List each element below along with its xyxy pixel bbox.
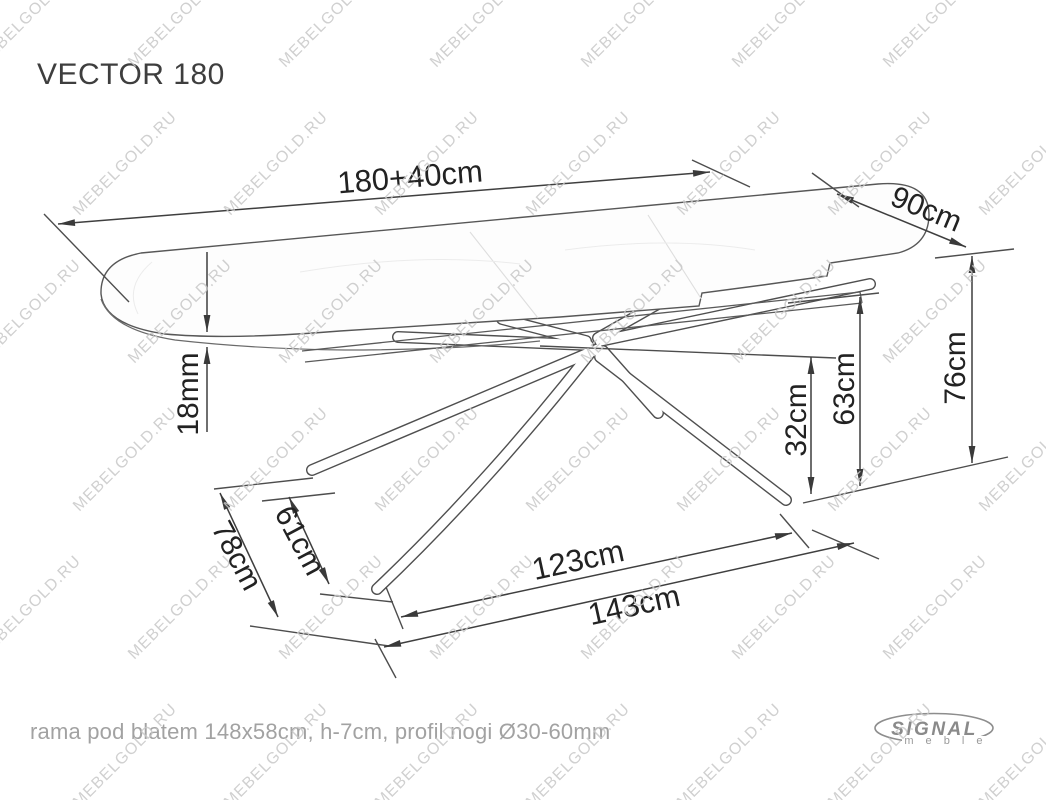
dim-height-frame-arrowhead — [857, 469, 864, 486]
extension-line — [803, 457, 1008, 503]
table-dimension-drawing — [0, 0, 1046, 800]
extension-line — [250, 626, 389, 646]
dim-base-width-inner-arrowhead — [775, 533, 792, 540]
signal-meble-logo: SIGNAL m e b l e — [872, 710, 997, 750]
extension-line — [262, 493, 335, 501]
dim-height-total-arrowhead — [969, 446, 976, 463]
dim-label-height-cross: 32cm — [782, 383, 812, 456]
dim-depth-arrowhead — [949, 237, 966, 247]
extension-line — [44, 214, 129, 302]
dim-height-frame-arrowhead — [857, 297, 864, 314]
dim-label-top-thickness-lower: 18mm — [174, 352, 204, 435]
extension-line — [780, 514, 809, 548]
dim-base-depth-arrowhead — [220, 493, 230, 510]
page-title: VECTOR 180 — [37, 58, 225, 92]
table-leg-fill — [603, 351, 658, 413]
dim-base-width-inner-arrowhead — [401, 610, 418, 617]
extension-line — [935, 249, 1014, 258]
table-leg-fill — [312, 349, 598, 470]
dim-height-total-arrowhead — [969, 256, 976, 273]
frame-spec-note: rama pod blatem 148x58cm, h-7cm, profil … — [30, 719, 610, 745]
dim-base-depth-arrowhead — [268, 600, 278, 617]
dim-height-cross-arrowhead — [808, 477, 815, 494]
logo-sub-text: m e b l e — [902, 736, 989, 747]
dim-label-height-total: 76cm — [941, 331, 971, 404]
extension-line — [320, 594, 393, 602]
dim-base-width-outer-arrowhead — [384, 640, 401, 647]
extension-line — [214, 478, 313, 489]
dim-length-total-arrowhead — [693, 170, 710, 177]
dim-length-total-arrowhead — [58, 219, 75, 226]
dim-height-cross-arrowhead — [808, 357, 815, 374]
extension-line — [386, 587, 403, 629]
dim-label-height-frame: 63cm — [830, 352, 860, 425]
diagram-page: 180+40cm90cm76cm63cm32cm18mm61cm78cm123c… — [0, 0, 1046, 800]
tabletop-outline — [101, 184, 929, 337]
